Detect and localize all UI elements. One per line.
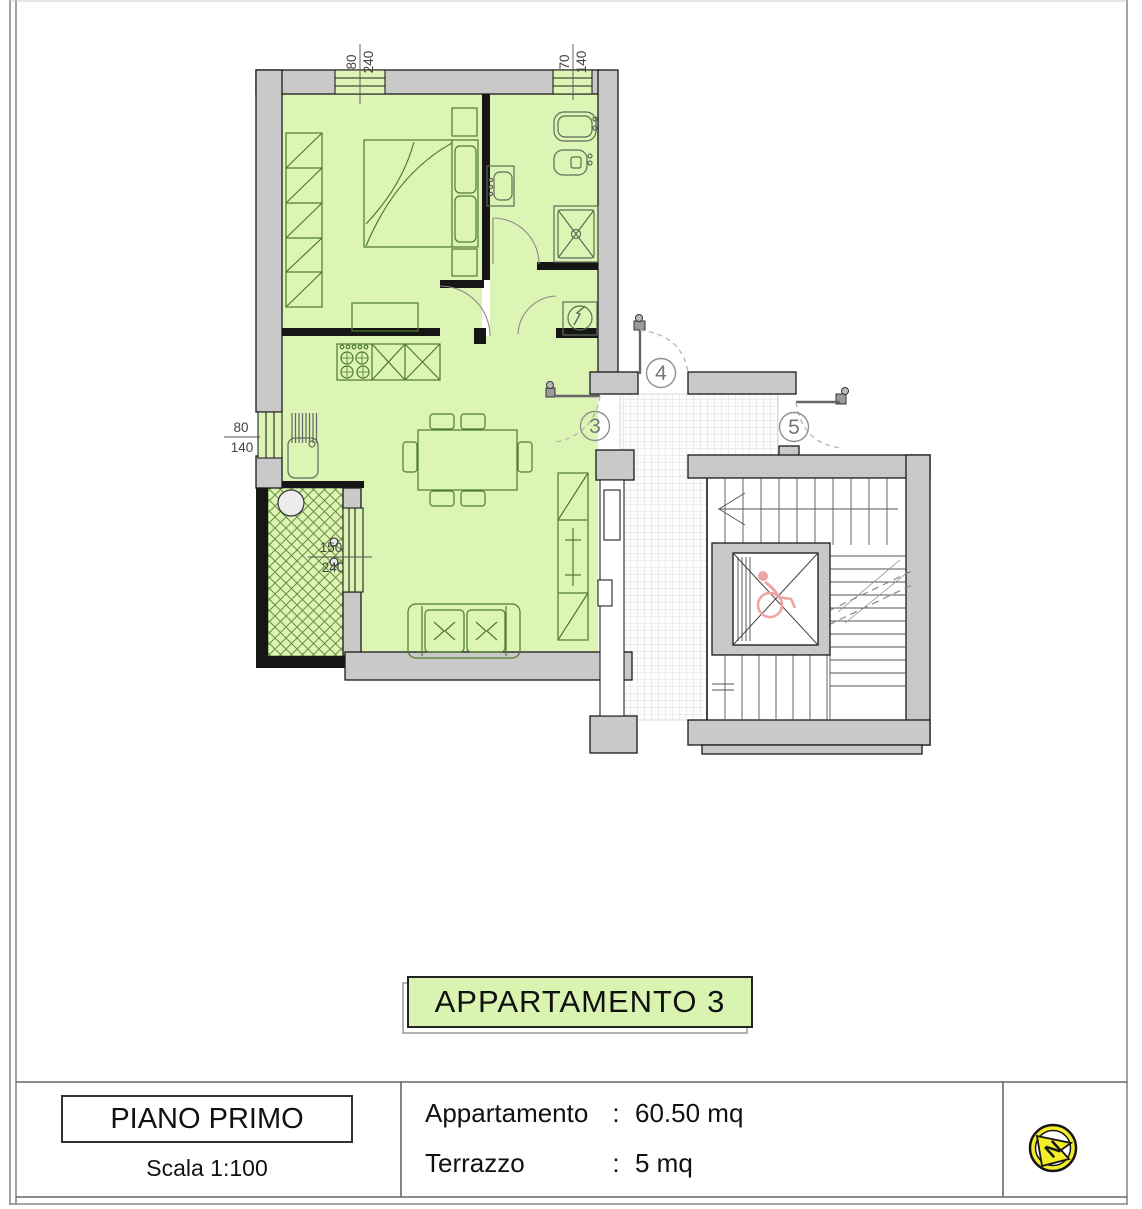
svg-text:140: 140 — [574, 51, 589, 74]
dim-kitchen-window: 80 140 — [224, 420, 260, 455]
svg-text:140: 140 — [231, 440, 254, 455]
terrace-table — [278, 490, 304, 516]
elevator — [712, 543, 830, 655]
svg-text:150: 150 — [320, 540, 343, 555]
french-window — [598, 480, 624, 716]
apartment-title: APPARTAMENTO 3 — [408, 977, 752, 1027]
svg-text:70: 70 — [557, 54, 572, 69]
marker-5: 5 — [780, 413, 809, 442]
svg-text:240: 240 — [322, 560, 345, 575]
kitchen-window — [258, 412, 282, 458]
area-value: 60.50 mq — [635, 1098, 743, 1129]
floor-plan-drawing: 80 240 70 140 80 140 150 240 3 4 — [0, 0, 1142, 1209]
area-row-terrace: Terrazzo : 5 mq — [425, 1145, 985, 1181]
stair-direction-arrow — [718, 493, 898, 525]
colon: : — [603, 1148, 629, 1179]
floor-label: PIANO PRIMO — [62, 1096, 352, 1142]
area-row-apartment: Appartamento : 60.50 mq — [425, 1095, 985, 1131]
colon: : — [603, 1098, 629, 1129]
svg-text:4: 4 — [655, 362, 667, 385]
door-5 — [796, 388, 849, 449]
area-label: Appartamento — [425, 1098, 603, 1129]
area-value: 5 mq — [635, 1148, 693, 1179]
svg-text:5: 5 — [788, 416, 800, 439]
floor-plan-sheet: 80 240 70 140 80 140 150 240 3 4 — [0, 0, 1142, 1209]
svg-text:80: 80 — [344, 54, 359, 69]
marker-4: 4 — [647, 359, 676, 388]
area-label: Terrazzo — [425, 1148, 603, 1179]
svg-text:80: 80 — [233, 420, 248, 435]
scale-label: Scala 1:100 — [62, 1153, 352, 1183]
svg-text:3: 3 — [589, 415, 601, 438]
north-arrow-icon: N — [1030, 1125, 1076, 1171]
svg-text:240: 240 — [361, 51, 376, 74]
